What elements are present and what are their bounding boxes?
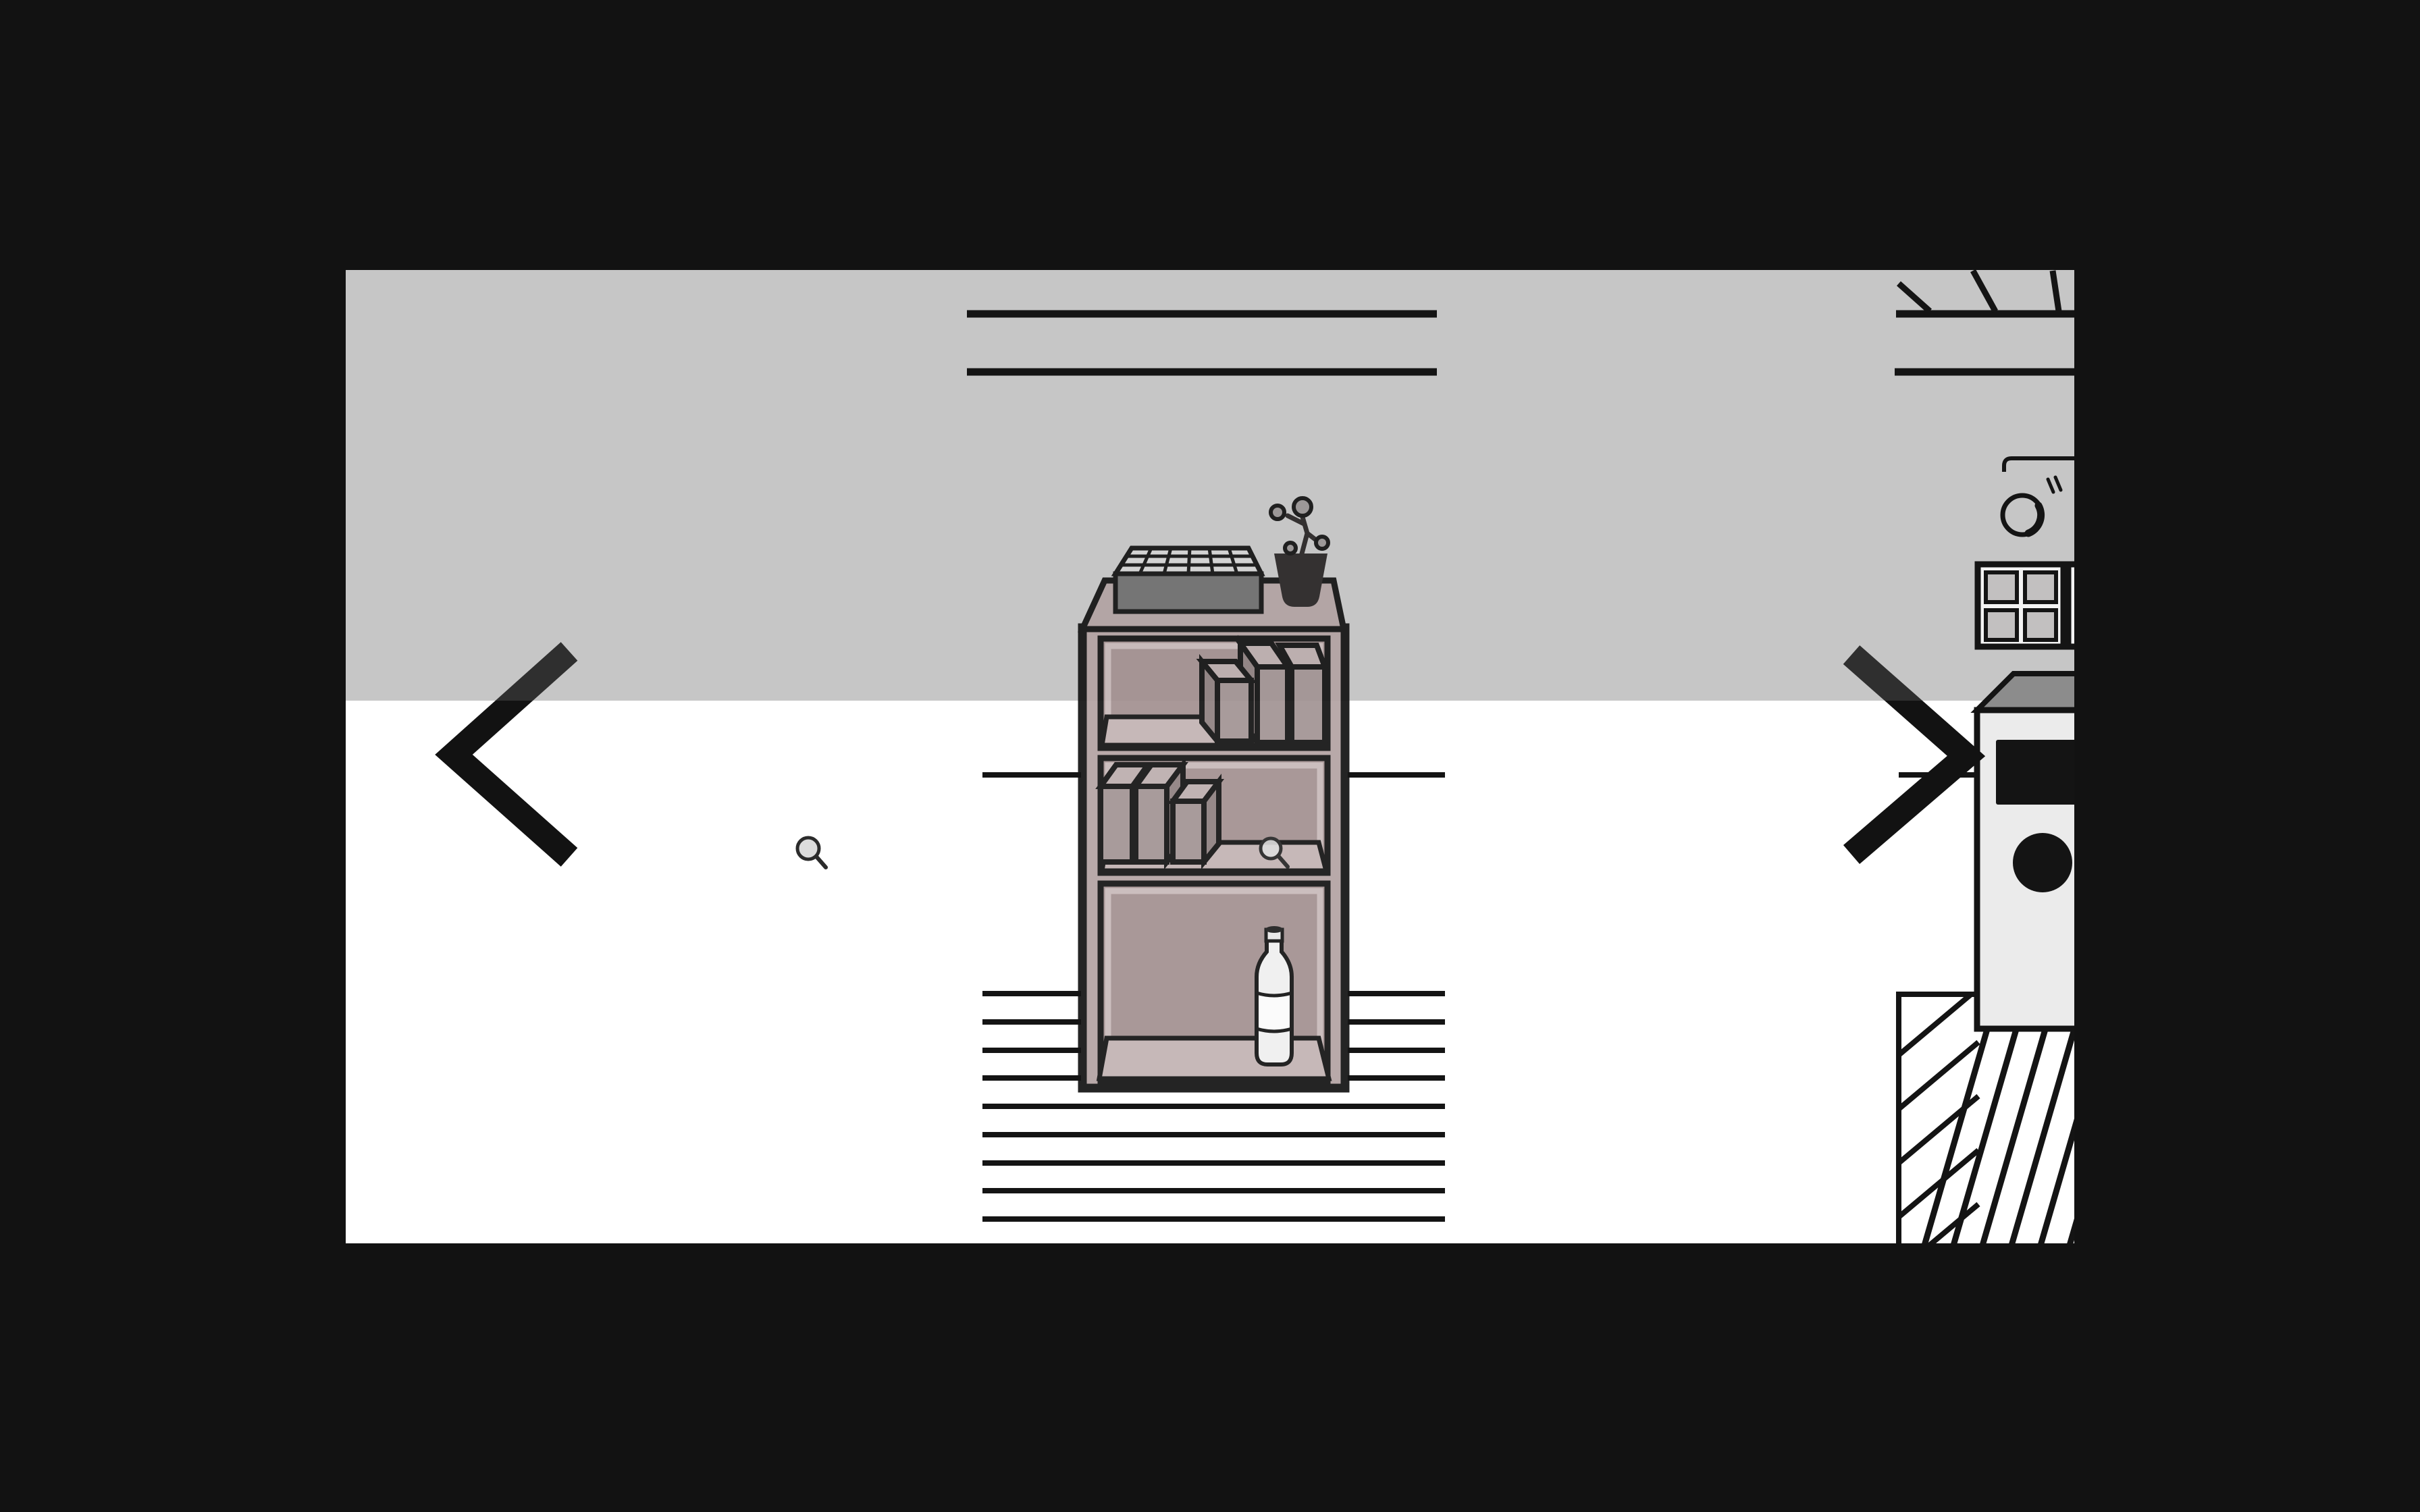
- plant-leaf: [1316, 537, 1328, 549]
- shelf-floor-bottom: [1099, 1038, 1329, 1079]
- shelf-box[interactable]: [1257, 667, 1288, 742]
- window-pane: [1986, 572, 2017, 602]
- window-pane: [2025, 572, 2056, 602]
- window-pane: [1986, 610, 2017, 640]
- shelf-box[interactable]: [1292, 667, 1325, 742]
- shelf-box[interactable]: [1136, 786, 1167, 862]
- shelf-box[interactable]: [1101, 786, 1132, 862]
- game-stage: [0, 0, 2420, 1512]
- shelf-unit[interactable]: [1082, 498, 1345, 1088]
- window-pane: [2025, 610, 2056, 640]
- kitchen-appliance[interactable]: [1977, 674, 2086, 1029]
- storage-crate[interactable]: [1115, 548, 1261, 612]
- plant-leaf: [1294, 498, 1311, 516]
- plant-leaf: [1285, 543, 1296, 553]
- plant-leaf: [1271, 506, 1284, 519]
- window-grid[interactable]: [1978, 564, 2086, 647]
- shelf-box-group-middle[interactable]: [1101, 765, 1219, 862]
- appliance-slot: [1996, 740, 2086, 805]
- shelf-box[interactable]: [1217, 680, 1251, 741]
- shelf-box[interactable]: [1173, 801, 1204, 862]
- scene-viewport: [346, 270, 2134, 1274]
- appliance-drum-hole: [2013, 833, 2072, 892]
